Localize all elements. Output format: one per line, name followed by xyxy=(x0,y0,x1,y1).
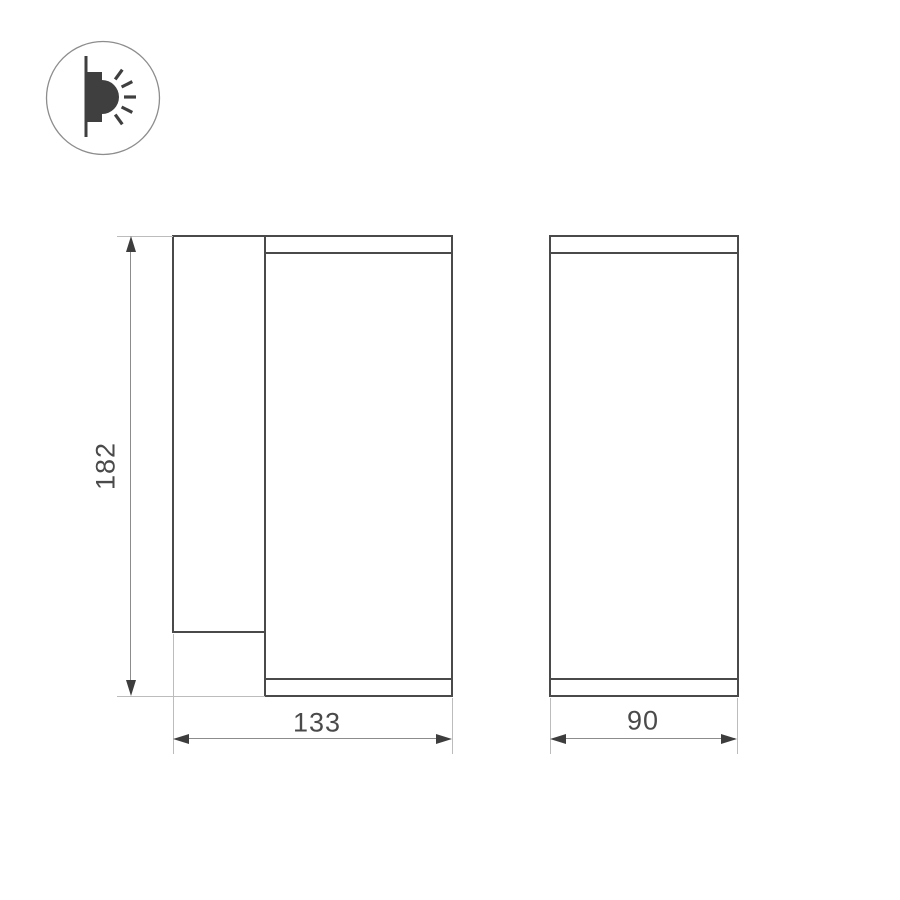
side-width-dim-arrow-left-icon xyxy=(173,734,189,744)
front-view-top-cap-line xyxy=(549,252,739,254)
front-width-dim-right-extension-line xyxy=(737,698,738,754)
icon-lamp-body xyxy=(86,72,102,122)
front-view-left-edge xyxy=(549,235,551,697)
side-view-backplate-bottom-edge xyxy=(172,631,266,633)
height-dim-label: 182 xyxy=(93,442,120,490)
technical-drawing-canvas: 182 133 90 xyxy=(0,0,900,900)
height-dim-arrow-down-icon xyxy=(126,680,136,696)
side-view-top-cap-line xyxy=(264,252,453,254)
side-view-body-right-edge xyxy=(451,235,453,697)
front-view-right-edge xyxy=(737,235,739,697)
front-width-dim-left-extension-line xyxy=(550,698,551,754)
side-view-top-edge xyxy=(172,235,453,237)
height-dim-line xyxy=(130,250,131,682)
height-dim-arrow-up-icon xyxy=(126,236,136,252)
wall-light-icon-svg xyxy=(45,38,163,156)
height-dim-bottom-extension-line xyxy=(117,696,265,697)
wall-light-icon xyxy=(45,38,163,156)
side-view-body-left-edge xyxy=(264,235,266,697)
front-width-dim-arrow-right-icon xyxy=(721,734,737,744)
front-width-dim-label: 90 xyxy=(627,708,659,735)
front-view-top-edge xyxy=(549,235,739,237)
side-width-dim-line xyxy=(176,738,449,739)
side-width-dim-right-extension-line xyxy=(452,698,453,754)
front-view-bottom-edge xyxy=(549,695,739,697)
side-view-bottom-cap-line xyxy=(264,678,453,680)
front-view-bottom-cap-line xyxy=(549,678,739,680)
front-width-dim-line xyxy=(553,738,735,739)
icon-lamp-lens xyxy=(102,80,119,114)
side-view-backplate-left-edge xyxy=(172,235,174,633)
front-width-dim-arrow-left-icon xyxy=(550,734,566,744)
side-view-body-bottom-edge xyxy=(264,695,453,697)
side-width-dim-arrow-right-icon xyxy=(436,734,452,744)
side-width-dim-label: 133 xyxy=(293,710,341,737)
